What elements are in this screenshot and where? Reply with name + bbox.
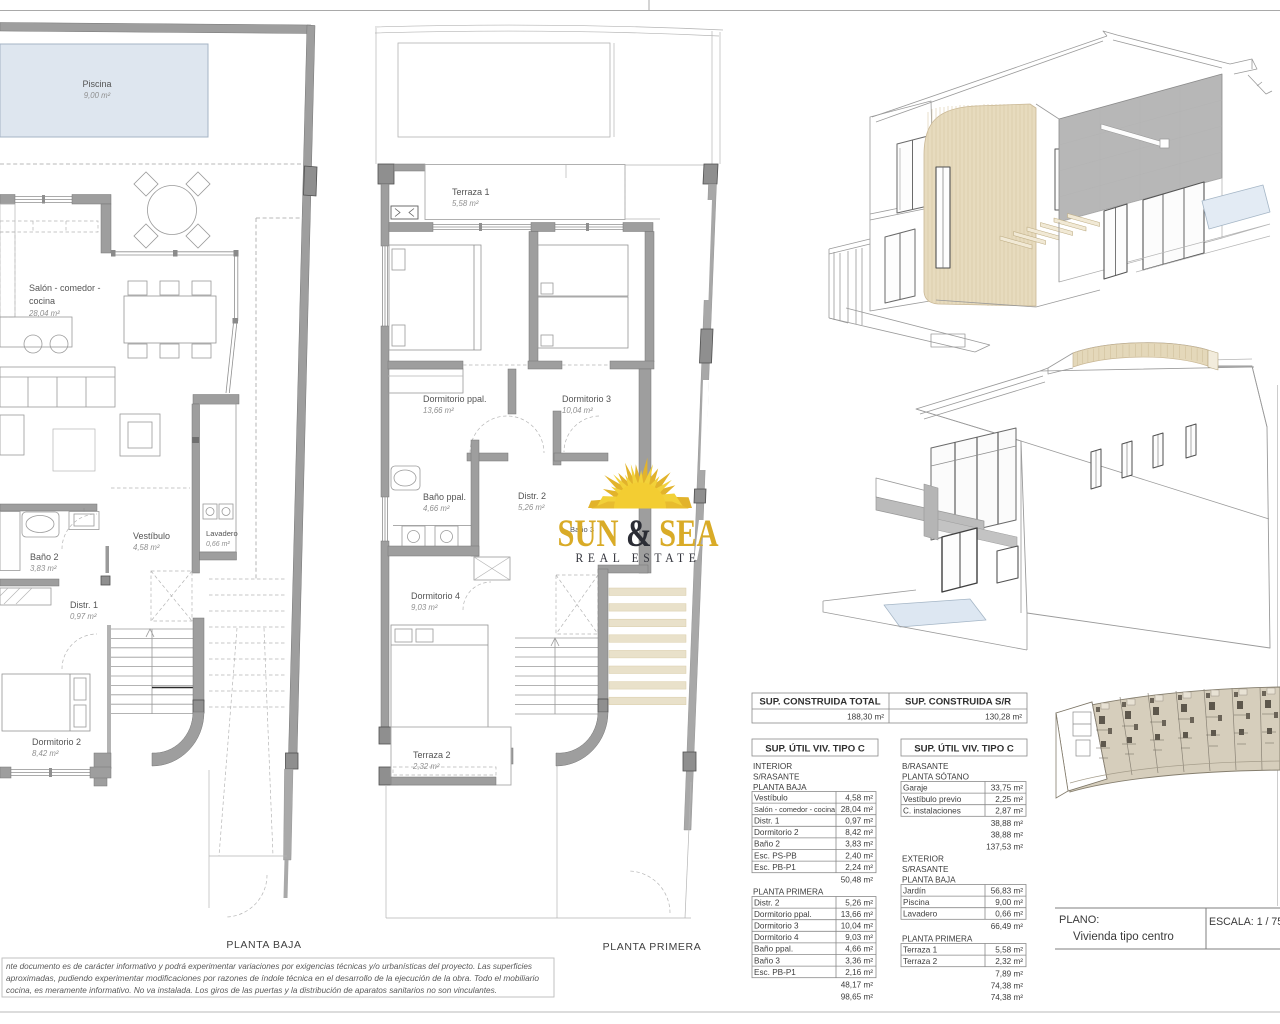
- svg-text:13,66 m²: 13,66 m²: [841, 910, 874, 919]
- svg-text:38,88 m²: 38,88 m²: [991, 819, 1024, 828]
- svg-text:PLANTA PRIMERA: PLANTA PRIMERA: [603, 941, 702, 953]
- svg-text:3,83 m²: 3,83 m²: [845, 840, 873, 849]
- svg-text:Esc. PS-PB: Esc. PS-PB: [754, 851, 797, 860]
- svg-text:Dormitorio ppal.: Dormitorio ppal.: [423, 394, 487, 404]
- svg-text:28,04 m²: 28,04 m²: [28, 309, 60, 318]
- svg-text:SUP. ÚTIL VIV. TIPO C: SUP. ÚTIL VIV. TIPO C: [914, 743, 1014, 755]
- svg-text:5,58 m²: 5,58 m²: [995, 945, 1023, 954]
- svg-text:cocina, es meramente informati: cocina, es meramente informativo. No va …: [6, 985, 497, 995]
- svg-text:REAL ESTATE: REAL ESTATE: [576, 551, 701, 565]
- svg-text:2,32 m²: 2,32 m²: [412, 762, 440, 771]
- svg-text:Salón - comedor - cocina: Salón - comedor - cocina: [754, 805, 836, 814]
- svg-text:0,66 m²: 0,66 m²: [206, 541, 230, 548]
- svg-text:5,26 m²: 5,26 m²: [845, 898, 873, 907]
- svg-text:Piscina: Piscina: [82, 79, 111, 89]
- svg-text:2,32 m²: 2,32 m²: [995, 957, 1023, 966]
- svg-text:4,58 m²: 4,58 m²: [133, 543, 160, 552]
- svg-text:33,75 m²: 33,75 m²: [991, 783, 1024, 792]
- svg-text:9,00 m²: 9,00 m²: [84, 91, 111, 100]
- svg-text:B/RASANTE: B/RASANTE: [902, 762, 949, 771]
- svg-text:PLANTA BAJA: PLANTA BAJA: [753, 783, 807, 792]
- svg-text:PLANTA PRIMERA: PLANTA PRIMERA: [753, 888, 824, 897]
- svg-text:Baño ppal.: Baño ppal.: [754, 945, 793, 954]
- svg-text:Terraza 1: Terraza 1: [452, 187, 490, 197]
- svg-text:Vivienda tipo centro: Vivienda tipo centro: [1073, 931, 1174, 943]
- svg-text:3,36 m²: 3,36 m²: [845, 956, 873, 965]
- svg-text:0,97 m²: 0,97 m²: [845, 817, 873, 826]
- svg-text:2,16 m²: 2,16 m²: [845, 968, 873, 977]
- svg-text:Dormitorio 3: Dormitorio 3: [754, 922, 799, 931]
- svg-text:Terraza 2: Terraza 2: [903, 957, 938, 966]
- svg-text:PLANO:: PLANO:: [1059, 914, 1099, 926]
- svg-text:50,48 m²: 50,48 m²: [841, 876, 874, 885]
- svg-text:3,83 m²: 3,83 m²: [30, 564, 57, 573]
- svg-text:10,04 m²: 10,04 m²: [562, 406, 593, 415]
- svg-text:SUP. CONSTRUIDA S/R: SUP. CONSTRUIDA S/R: [905, 697, 1011, 708]
- svg-text:28,04 m²: 28,04 m²: [841, 805, 874, 814]
- svg-text:13,66 m²: 13,66 m²: [423, 406, 454, 415]
- svg-text:Baño ppal.: Baño ppal.: [423, 492, 466, 502]
- svg-text:Baño 2: Baño 2: [30, 552, 59, 562]
- svg-text:7,89 m²: 7,89 m²: [995, 970, 1023, 979]
- svg-text:9,03 m²: 9,03 m²: [845, 933, 873, 942]
- svg-text:aproximadas, pudiendo experime: aproximadas, pudiendo experimentar modif…: [6, 973, 539, 983]
- svg-text:SUP. ÚTIL VIV. TIPO C: SUP. ÚTIL VIV. TIPO C: [765, 743, 865, 755]
- svg-text:38,88 m²: 38,88 m²: [991, 831, 1024, 840]
- svg-text:Piscina: Piscina: [903, 898, 930, 907]
- svg-text:4,66 m²: 4,66 m²: [845, 945, 873, 954]
- svg-text:PLANTA SÓTANO: PLANTA SÓTANO: [902, 772, 969, 782]
- svg-text:S/RASANTE: S/RASANTE: [902, 865, 949, 874]
- svg-text:56,83 m²: 56,83 m²: [991, 886, 1024, 895]
- svg-text:Terraza 1: Terraza 1: [903, 945, 938, 954]
- svg-text:Esc. PB-P1: Esc. PB-P1: [754, 968, 796, 977]
- svg-text:8,42 m²: 8,42 m²: [32, 749, 59, 758]
- svg-text:2,87 m²: 2,87 m²: [995, 807, 1023, 816]
- svg-text:Vestíbulo previo: Vestíbulo previo: [903, 795, 962, 804]
- svg-text:9,00 m²: 9,00 m²: [995, 898, 1023, 907]
- svg-text:Vestíbulo: Vestíbulo: [133, 531, 170, 541]
- svg-text:Dormitorio 3: Dormitorio 3: [562, 394, 611, 404]
- svg-text:nte documento es de carácter i: nte documento es de carácter informativo…: [6, 961, 533, 971]
- svg-text:Jardín: Jardín: [903, 886, 926, 895]
- svg-text:Distr. 1: Distr. 1: [754, 817, 780, 826]
- svg-text:Distr. 2: Distr. 2: [518, 491, 546, 501]
- svg-text:66,49 m²: 66,49 m²: [991, 922, 1024, 931]
- svg-text:4,66 m²: 4,66 m²: [423, 504, 450, 513]
- svg-text:188,30 m²: 188,30 m²: [847, 713, 884, 722]
- svg-text:EXTERIOR: EXTERIOR: [902, 855, 944, 864]
- svg-text:Esc. PB-P1: Esc. PB-P1: [754, 863, 796, 872]
- svg-text:Dormitorio 4: Dormitorio 4: [411, 591, 460, 601]
- svg-text:Terraza 2: Terraza 2: [413, 750, 451, 760]
- svg-text:Dormitorio 2: Dormitorio 2: [32, 737, 81, 747]
- svg-text:2,24 m²: 2,24 m²: [845, 863, 873, 872]
- svg-text:9,03 m²: 9,03 m²: [411, 603, 438, 612]
- svg-text:5,58 m²: 5,58 m²: [452, 199, 479, 208]
- svg-text:ESCALA: 1 / 75: ESCALA: 1 / 75: [1209, 916, 1280, 928]
- svg-text:74,38 m²: 74,38 m²: [991, 982, 1024, 991]
- svg-text:PLANTA BAJA: PLANTA BAJA: [902, 876, 956, 885]
- svg-text:137,53 m²: 137,53 m²: [986, 843, 1023, 852]
- svg-text:2,40 m²: 2,40 m²: [845, 851, 873, 860]
- svg-text:cocina: cocina: [29, 296, 55, 306]
- svg-text:8,42 m²: 8,42 m²: [845, 828, 873, 837]
- svg-text:Salón - comedor -: Salón - comedor -: [29, 283, 101, 293]
- svg-text:4,58 m²: 4,58 m²: [845, 793, 873, 802]
- svg-text:Baño 3: Baño 3: [754, 956, 780, 965]
- svg-text:Lavadero: Lavadero: [206, 529, 238, 538]
- svg-text:98,65 m²: 98,65 m²: [841, 993, 874, 1002]
- svg-text:SUN & SEA: SUN & SEA: [558, 512, 719, 555]
- svg-text:Dormitorio ppal.: Dormitorio ppal.: [754, 910, 812, 919]
- svg-text:C. instalaciones: C. instalaciones: [903, 807, 961, 816]
- svg-text:74,38 m²: 74,38 m²: [991, 993, 1024, 1002]
- svg-text:48,17 m²: 48,17 m²: [841, 981, 874, 990]
- svg-text:Dormitorio 2: Dormitorio 2: [754, 828, 799, 837]
- svg-text:INTERIOR: INTERIOR: [753, 762, 792, 771]
- svg-text:SUP. CONSTRUIDA TOTAL: SUP. CONSTRUIDA TOTAL: [759, 697, 880, 708]
- svg-text:Distr. 2: Distr. 2: [754, 898, 780, 907]
- svg-text:S/RASANTE: S/RASANTE: [753, 773, 800, 782]
- svg-text:0,97 m²: 0,97 m²: [70, 612, 97, 621]
- svg-text:130,28 m²: 130,28 m²: [985, 713, 1022, 722]
- svg-text:10,04 m²: 10,04 m²: [841, 922, 874, 931]
- svg-text:PLANTA BAJA: PLANTA BAJA: [226, 939, 301, 951]
- svg-text:Vestíbulo: Vestíbulo: [754, 793, 788, 802]
- svg-text:5,26 m²: 5,26 m²: [518, 503, 545, 512]
- svg-text:2,25 m²: 2,25 m²: [995, 795, 1023, 804]
- svg-text:Distr. 1: Distr. 1: [70, 600, 98, 610]
- svg-text:Baño 2: Baño 2: [754, 840, 780, 849]
- svg-text:0,66 m²: 0,66 m²: [995, 910, 1023, 919]
- svg-text:Dormitorio 4: Dormitorio 4: [754, 933, 799, 942]
- svg-text:Garaje: Garaje: [903, 783, 928, 792]
- svg-text:Lavadero: Lavadero: [903, 910, 938, 919]
- svg-text:PLANTA PRIMERA: PLANTA PRIMERA: [902, 935, 973, 944]
